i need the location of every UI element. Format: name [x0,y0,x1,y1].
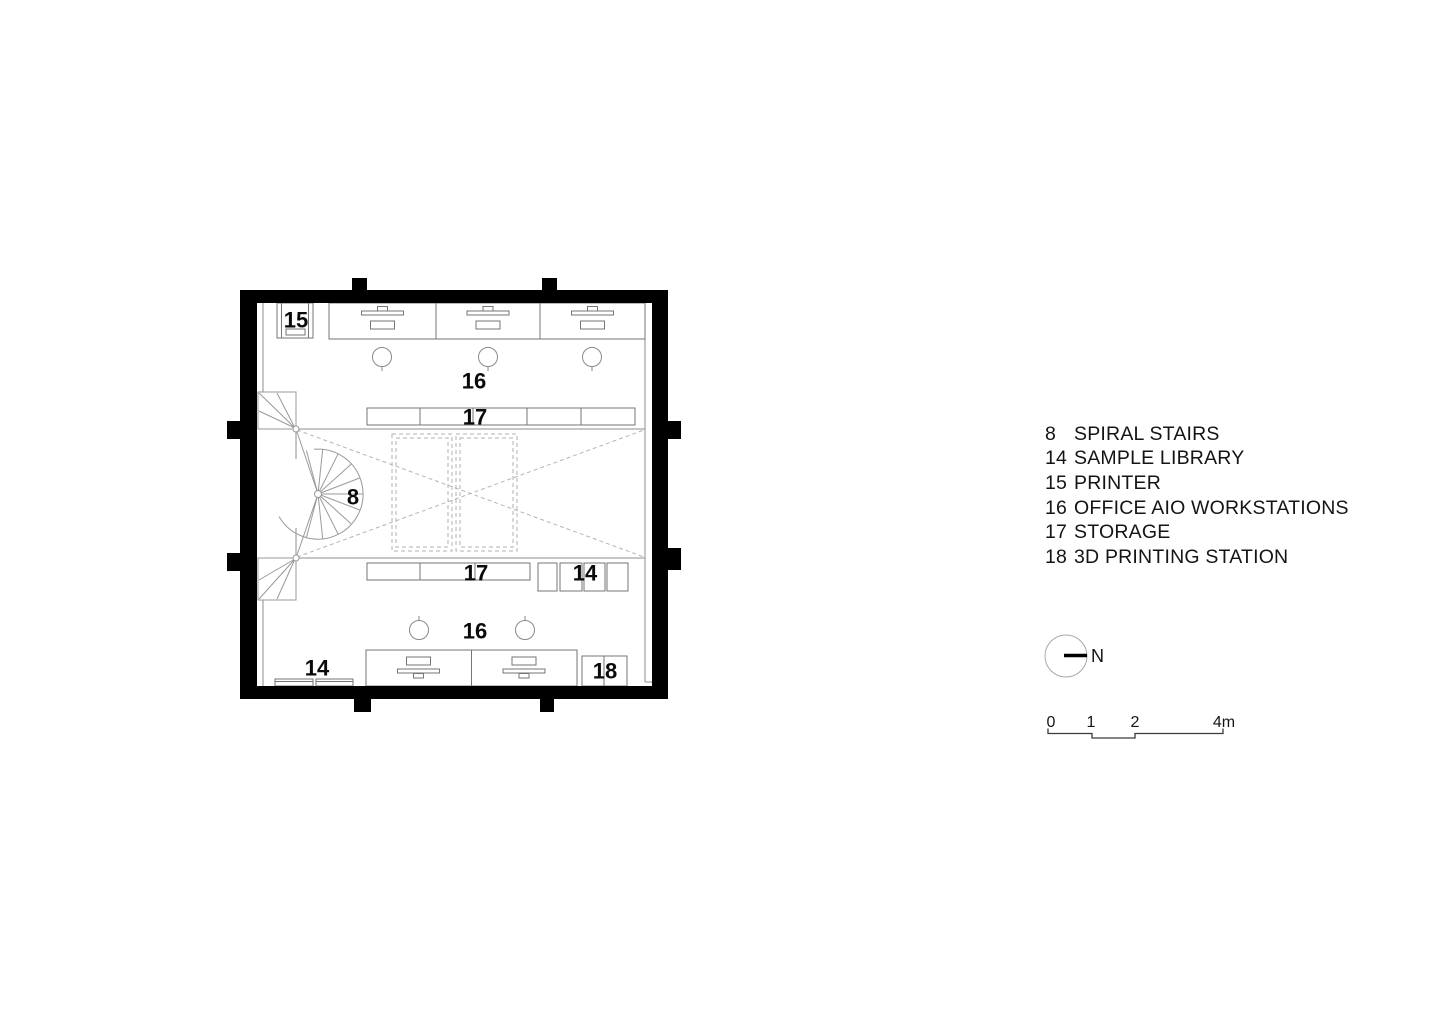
north-indicator: N [1045,635,1104,677]
room-label-sample-library-bottom: 14 [305,656,330,681]
room-label-storage-top: 17 [463,405,487,430]
north-label: N [1091,646,1104,666]
void-opening [392,434,517,551]
legend-number: 18 [1045,546,1074,569]
room-label-printing-station: 18 [593,659,617,684]
legend-item-sample-library: 14 SAMPLE LIBRARY [1045,447,1349,472]
exterior-wall [240,290,668,699]
legend-number: 14 [1045,447,1074,470]
legend-item-storage: 17 STORAGE [1045,520,1349,545]
room-label-spiral-stairs: 8 [347,485,359,510]
storage-shelf-bottom [367,563,530,580]
chairs-top [373,348,602,372]
scale-tick-4m: 4m [1213,714,1235,731]
scale-bar: 0 1 2 4m [1047,714,1236,738]
legend-number: 17 [1045,521,1074,544]
legend-number: 16 [1045,497,1074,520]
storage-shelf-top [367,408,635,425]
legend-number: 15 [1045,472,1074,495]
legend-number: 8 [1045,423,1074,446]
scale-tick-2: 2 [1131,714,1140,731]
legend-item-office-aio-workstations: 16 OFFICE AIO WORKSTATIONS [1045,496,1349,521]
scale-tick-1: 1 [1087,714,1096,731]
legend-item-printer: 15 PRINTER [1045,471,1349,496]
room-label-workstations-bottom: 16 [463,619,487,644]
legend: 8 SPIRAL STAIRS 14 SAMPLE LIBRARY 15 PRI… [1045,422,1349,570]
room-label-sample-library-mid: 14 [573,561,598,586]
legend-label: OFFICE AIO WORKSTATIONS [1074,497,1349,520]
desk-row-bottom [366,650,577,686]
legend-label: SPIRAL STAIRS [1074,423,1220,446]
wall-tab [227,278,681,712]
room-label-workstations-top: 16 [462,369,486,394]
desk-row-top [329,303,645,339]
room-label-storage-bottom: 17 [464,561,488,586]
legend-label: PRINTER [1074,472,1161,495]
legend-item-3d-printing-station: 18 3D PRINTING STATION [1045,545,1349,570]
legend-label: SAMPLE LIBRARY [1074,447,1244,470]
scale-tick-0: 0 [1047,714,1056,731]
legend-item-spiral-stairs: 8 SPIRAL STAIRS [1045,422,1349,447]
legend-label: 3D PRINTING STATION [1074,546,1288,569]
legend-label: STORAGE [1074,521,1170,544]
room-label-printer: 15 [284,308,308,333]
